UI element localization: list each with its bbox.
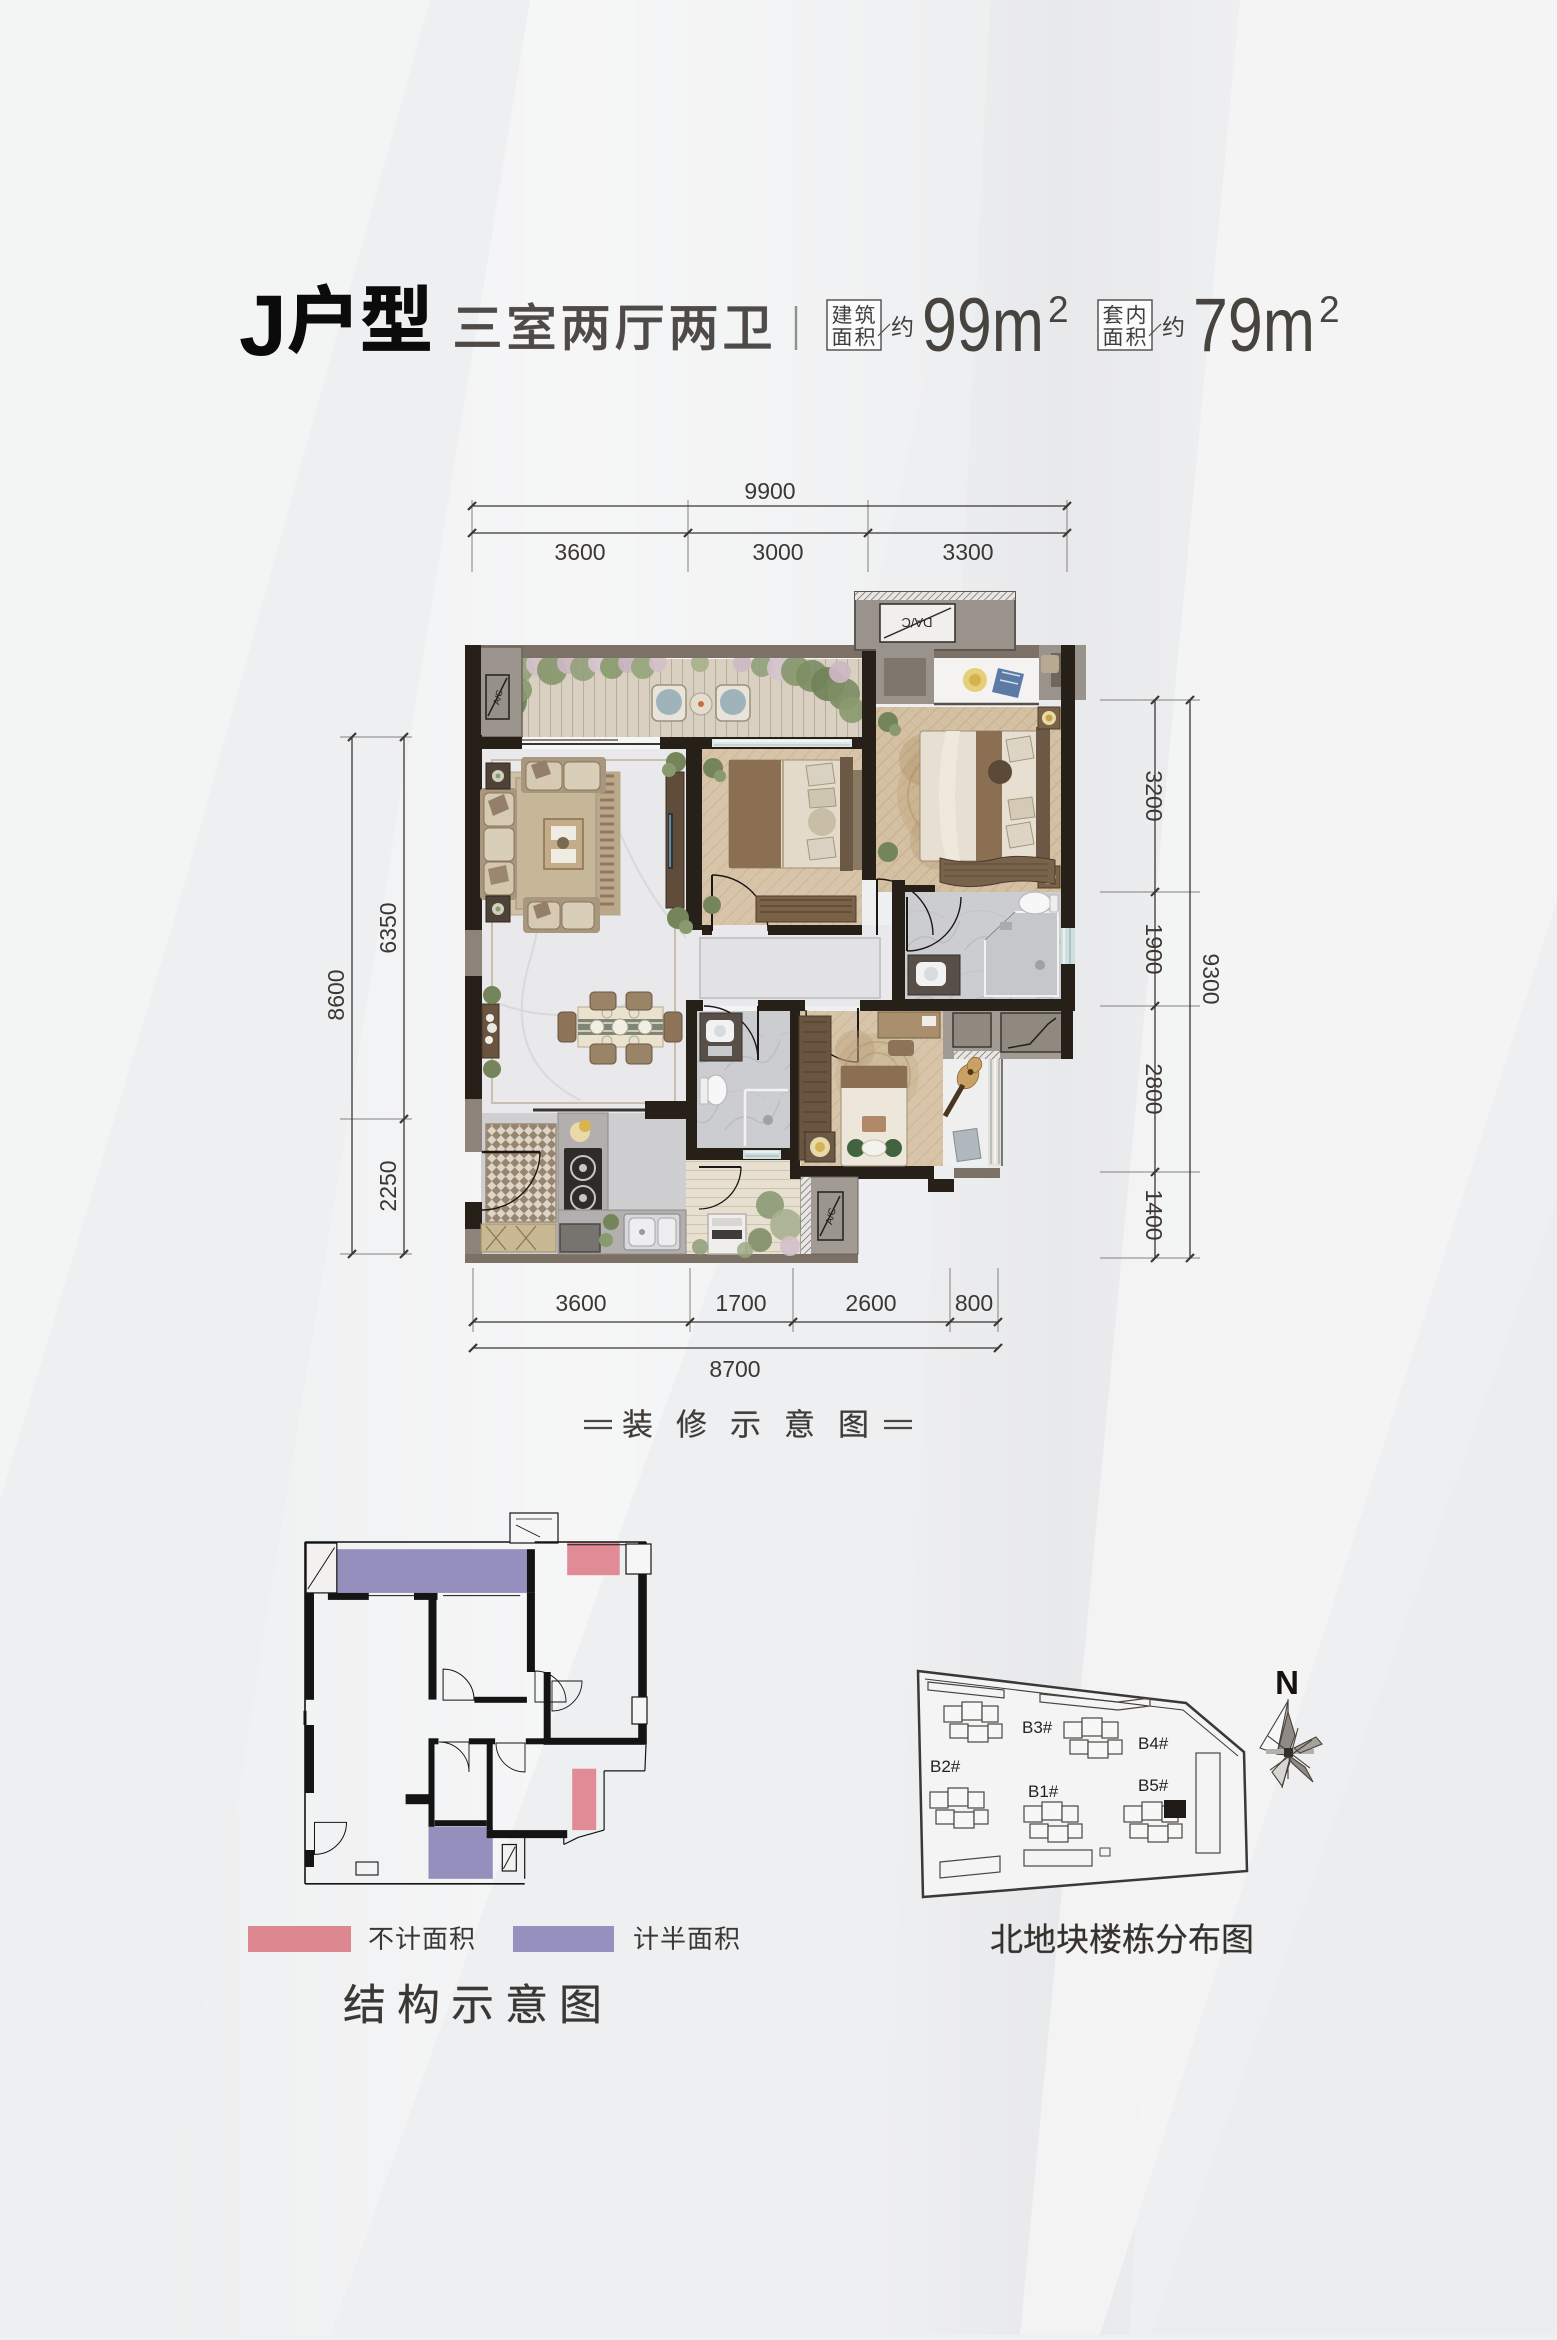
svg-text:2: 2 xyxy=(1048,289,1069,330)
svg-text:1400: 1400 xyxy=(1141,1189,1167,1240)
svg-text:1900: 1900 xyxy=(1141,923,1167,974)
svg-text:J: J xyxy=(239,278,287,374)
svg-text:B2#: B2# xyxy=(930,1757,961,1776)
svg-text:9300: 9300 xyxy=(1198,953,1224,1004)
svg-text:79m: 79m xyxy=(1193,283,1315,368)
svg-text:3600: 3600 xyxy=(554,539,605,565)
svg-text:N: N xyxy=(1275,1664,1299,1701)
svg-text:6350: 6350 xyxy=(375,902,401,953)
svg-text:9900: 9900 xyxy=(744,478,795,504)
svg-text:3300: 3300 xyxy=(942,539,993,565)
svg-text:2: 2 xyxy=(1319,289,1340,330)
svg-text:B4#: B4# xyxy=(1138,1734,1169,1753)
svg-text:99m: 99m xyxy=(922,283,1044,368)
svg-text:B1#: B1# xyxy=(1028,1782,1059,1801)
svg-text:3600: 3600 xyxy=(555,1290,606,1316)
svg-text:800: 800 xyxy=(955,1290,993,1316)
svg-text:2250: 2250 xyxy=(375,1160,401,1211)
svg-text:B3#: B3# xyxy=(1022,1718,1053,1737)
svg-text:8700: 8700 xyxy=(709,1356,760,1382)
svg-text:3000: 3000 xyxy=(752,539,803,565)
svg-text:8600: 8600 xyxy=(323,969,349,1020)
svg-text:2800: 2800 xyxy=(1141,1063,1167,1114)
svg-text:2600: 2600 xyxy=(845,1290,896,1316)
svg-text:B5#: B5# xyxy=(1138,1776,1169,1795)
svg-text:3200: 3200 xyxy=(1141,770,1167,821)
svg-text:DA/C: DA/C xyxy=(901,615,932,630)
svg-text:1700: 1700 xyxy=(715,1290,766,1316)
